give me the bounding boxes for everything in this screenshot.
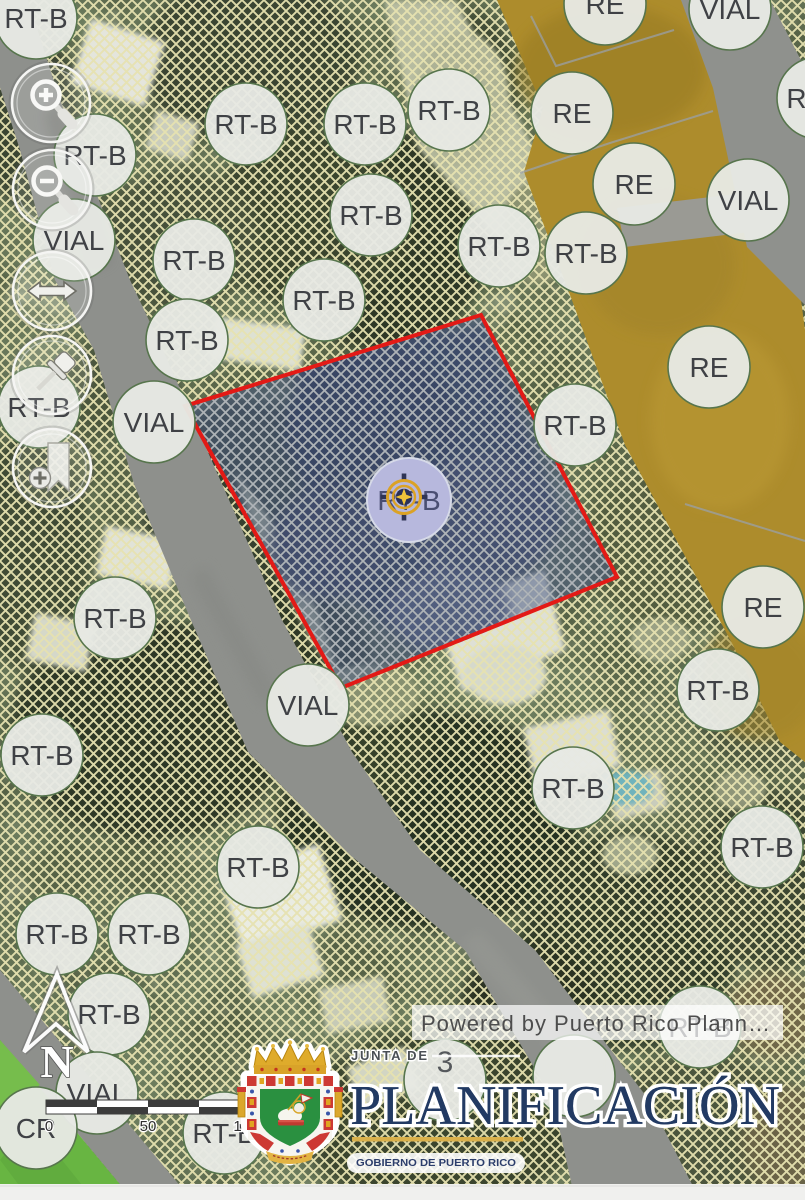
svg-text:RT-B: RT-B [214, 109, 277, 140]
svg-text:VIAL: VIAL [278, 690, 339, 721]
svg-text:RT-B: RT-B [417, 95, 480, 126]
svg-text:RT-B: RT-B [226, 852, 289, 883]
svg-text:RE: RE [586, 0, 625, 20]
svg-text:N: N [40, 1036, 73, 1087]
svg-text:RT-B: RT-B [162, 245, 225, 276]
svg-text:GOBIERNO DE PUERTO RICO: GOBIERNO DE PUERTO RICO [356, 1158, 516, 1169]
svg-text:VIAL: VIAL [718, 185, 779, 216]
svg-text:RT-B: RT-B [155, 325, 218, 356]
svg-text:0: 0 [45, 1118, 53, 1135]
svg-text:RT-B: RT-B [686, 675, 749, 706]
svg-text:RE: RE [744, 592, 783, 623]
svg-text:RT-B: RT-B [10, 740, 73, 771]
svg-text:PLANIFICACIÓN: PLANIFICACIÓN [350, 1074, 780, 1137]
svg-text:RT-B: RT-B [333, 109, 396, 140]
svg-text:Powered by Puerto Rico Plann…: Powered by Puerto Rico Plann… [421, 1011, 770, 1036]
svg-text:RT-B: RT-B [83, 603, 146, 634]
svg-text:RT-B: RT-B [467, 231, 530, 262]
svg-text:RT-B: RT-B [786, 83, 805, 114]
svg-text:JUNTA DE: JUNTA DE [351, 1048, 427, 1063]
svg-text:RT-B: RT-B [541, 773, 604, 804]
svg-text:RE: RE [553, 98, 592, 129]
svg-text:RT-B: RT-B [543, 410, 606, 441]
svg-text:RT-B: RT-B [730, 832, 793, 863]
svg-text:VIAL: VIAL [700, 0, 761, 25]
svg-text:RT-B: RT-B [25, 919, 88, 950]
svg-text:RE: RE [615, 169, 654, 200]
svg-text:RT-B: RT-B [117, 919, 180, 950]
svg-text:50: 50 [140, 1118, 157, 1135]
svg-text:RT-B: RT-B [77, 999, 140, 1030]
svg-text:RT-B: RT-B [4, 3, 67, 34]
svg-text:RT-B: RT-B [554, 238, 617, 269]
svg-text:RE: RE [690, 352, 729, 383]
svg-text:RT-B: RT-B [339, 200, 402, 231]
svg-text:VIAL: VIAL [124, 407, 185, 438]
svg-text:RT-B: RT-B [292, 285, 355, 316]
